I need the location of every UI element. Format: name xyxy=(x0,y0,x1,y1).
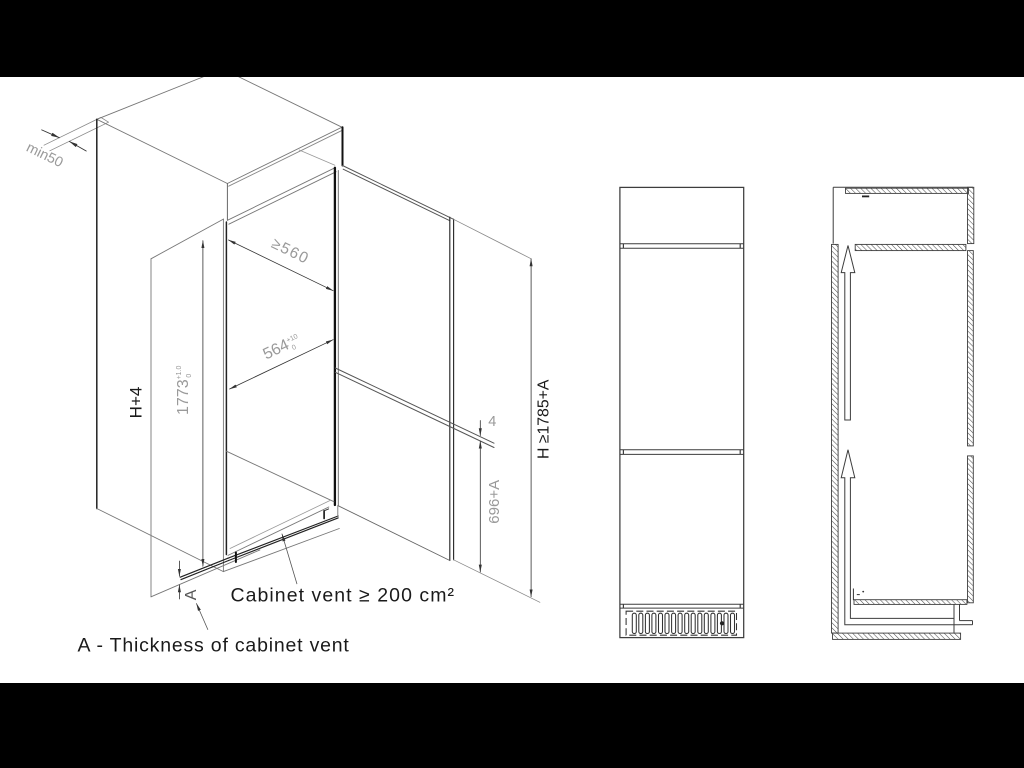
svg-text:A: A xyxy=(183,589,200,600)
svg-text:Cabinet vent ≥ 200 cm²: Cabinet vent ≥ 200 cm² xyxy=(231,585,456,607)
svg-text:H ≥1785+A: H ≥1785+A xyxy=(535,379,552,459)
svg-text:696+A: 696+A xyxy=(486,480,503,524)
svg-text:H+4: H+4 xyxy=(126,387,145,419)
svg-text:4: 4 xyxy=(488,414,496,430)
svg-text:A - Thickness of cabinet vent: A - Thickness of cabinet vent xyxy=(78,635,350,657)
